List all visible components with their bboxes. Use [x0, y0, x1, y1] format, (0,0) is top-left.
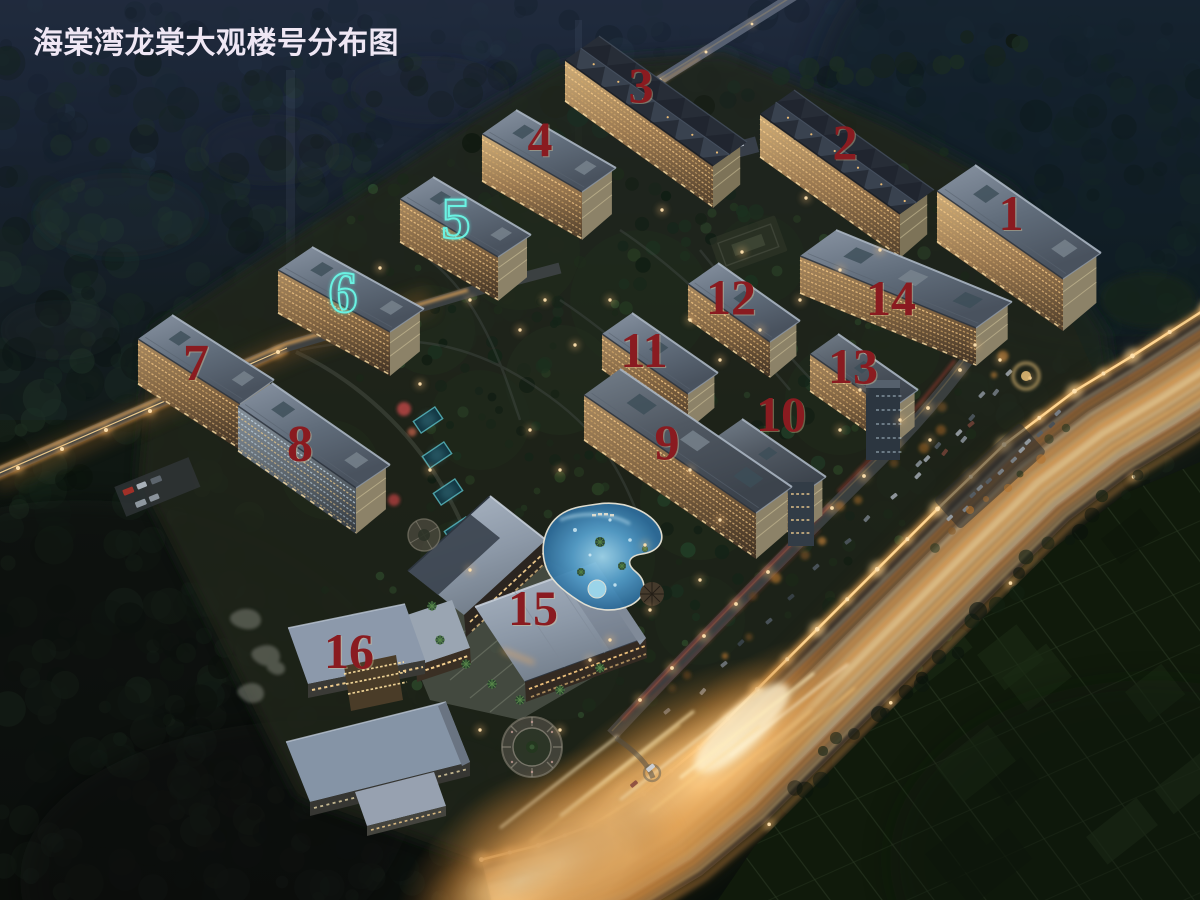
svg-text:3: 3	[629, 57, 654, 113]
svg-text:12: 12	[706, 269, 756, 325]
svg-text:4: 4	[528, 111, 553, 167]
svg-text:10: 10	[756, 386, 806, 442]
svg-text:11: 11	[620, 322, 667, 378]
svg-text:14: 14	[866, 270, 916, 326]
svg-text:9: 9	[655, 414, 680, 470]
svg-text:6: 6	[329, 260, 358, 325]
svg-text:16: 16	[324, 623, 374, 679]
svg-text:7: 7	[183, 335, 209, 392]
svg-text:15: 15	[508, 580, 558, 636]
svg-text:5: 5	[442, 186, 471, 251]
svg-text:2: 2	[833, 114, 858, 170]
svg-text:13: 13	[828, 338, 878, 394]
svg-text:海棠湾龙棠大观楼号分布图: 海棠湾龙棠大观楼号分布图	[33, 26, 399, 60]
svg-text:8: 8	[287, 416, 313, 473]
svg-text:1: 1	[999, 185, 1024, 241]
